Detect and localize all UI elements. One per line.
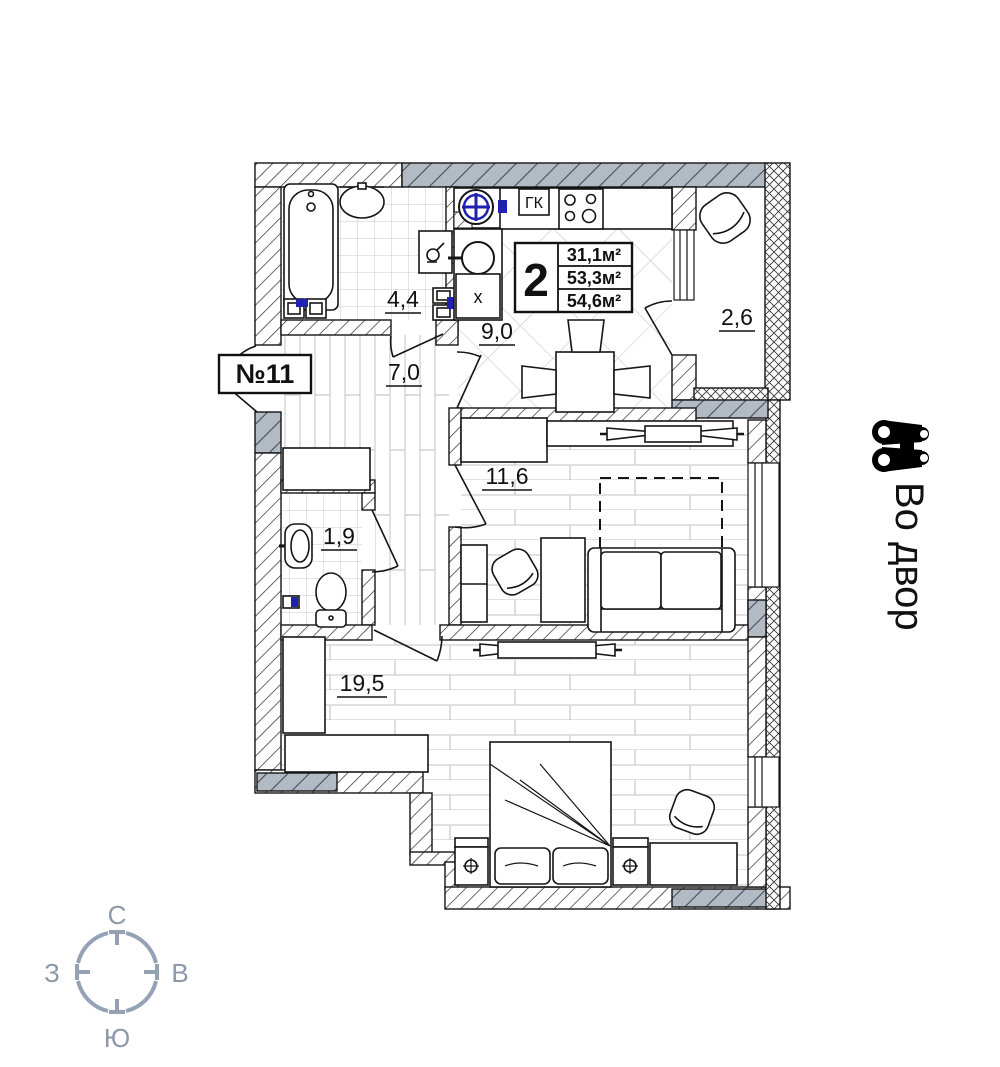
floor-plan-page: 2 31,1м² 53,3м² 54,6м² ГК х <box>0 0 1000 1067</box>
rooms-count: 2 <box>523 254 549 306</box>
kitchen-area-label: 9,0 <box>481 318 513 344</box>
apartment-info-box: 2 31,1м² 53,3м² 54,6м² <box>515 243 632 312</box>
living-area-value: 31,1м² <box>567 245 621 265</box>
view-note: Во двор <box>872 420 931 631</box>
compass-west-label: З <box>44 958 60 988</box>
chair-top <box>568 320 604 352</box>
binoculars-icon <box>872 420 929 472</box>
bedroom-dresser <box>285 735 428 772</box>
balcony-area-label: 2,6 <box>721 304 753 330</box>
toilet-icon <box>316 573 346 627</box>
apartment-area-value: 53,3м² <box>567 268 621 288</box>
apartment-number-label: №11 <box>236 359 295 389</box>
bedroom-wardrobe <box>283 637 325 733</box>
bedroom-area-label: 19,5 <box>340 670 385 696</box>
chair-right <box>614 366 650 398</box>
living-area-label: 11,6 <box>485 463 528 489</box>
bathroom-area-label: 4,4 <box>387 286 419 312</box>
compass-east-label: В <box>171 958 188 988</box>
wc-area-label: 1,9 <box>323 523 355 549</box>
nightstand-left <box>455 838 488 885</box>
stove-icon <box>559 189 603 229</box>
compass-south-label: Ю <box>104 1023 130 1053</box>
bedroom-window <box>748 757 779 807</box>
hallway-area-label: 7,0 <box>388 359 420 385</box>
living-desk <box>541 538 585 622</box>
view-note-label: Во двор <box>887 482 931 631</box>
chair-left <box>522 366 556 398</box>
living-window <box>748 463 779 587</box>
bathtub-icon <box>284 184 338 310</box>
balcony-window <box>674 230 694 300</box>
floor-plan-drawing: 2 31,1м² 53,3м² 54,6м² ГК х <box>0 0 1000 1067</box>
apartment-number-callout: №11 <box>219 355 311 393</box>
nightstand-right <box>613 838 648 885</box>
gas-boiler-label: ГК <box>525 195 544 212</box>
water-meter-icon <box>283 596 299 608</box>
living-shelf-left <box>461 545 487 622</box>
hall-closet <box>283 448 370 490</box>
bed-icon <box>490 742 611 887</box>
sofa-icon <box>588 548 735 632</box>
washing-machine-icon <box>419 231 452 273</box>
compass-rose: С В Ю З <box>44 900 189 1053</box>
fan-icon <box>454 188 507 228</box>
living-wardrobe <box>461 418 547 462</box>
total-area-value: 54,6м² <box>567 291 621 311</box>
washer-box-label: х <box>474 287 483 307</box>
compass-north-label: С <box>108 900 127 930</box>
bedroom-desk <box>650 843 737 885</box>
